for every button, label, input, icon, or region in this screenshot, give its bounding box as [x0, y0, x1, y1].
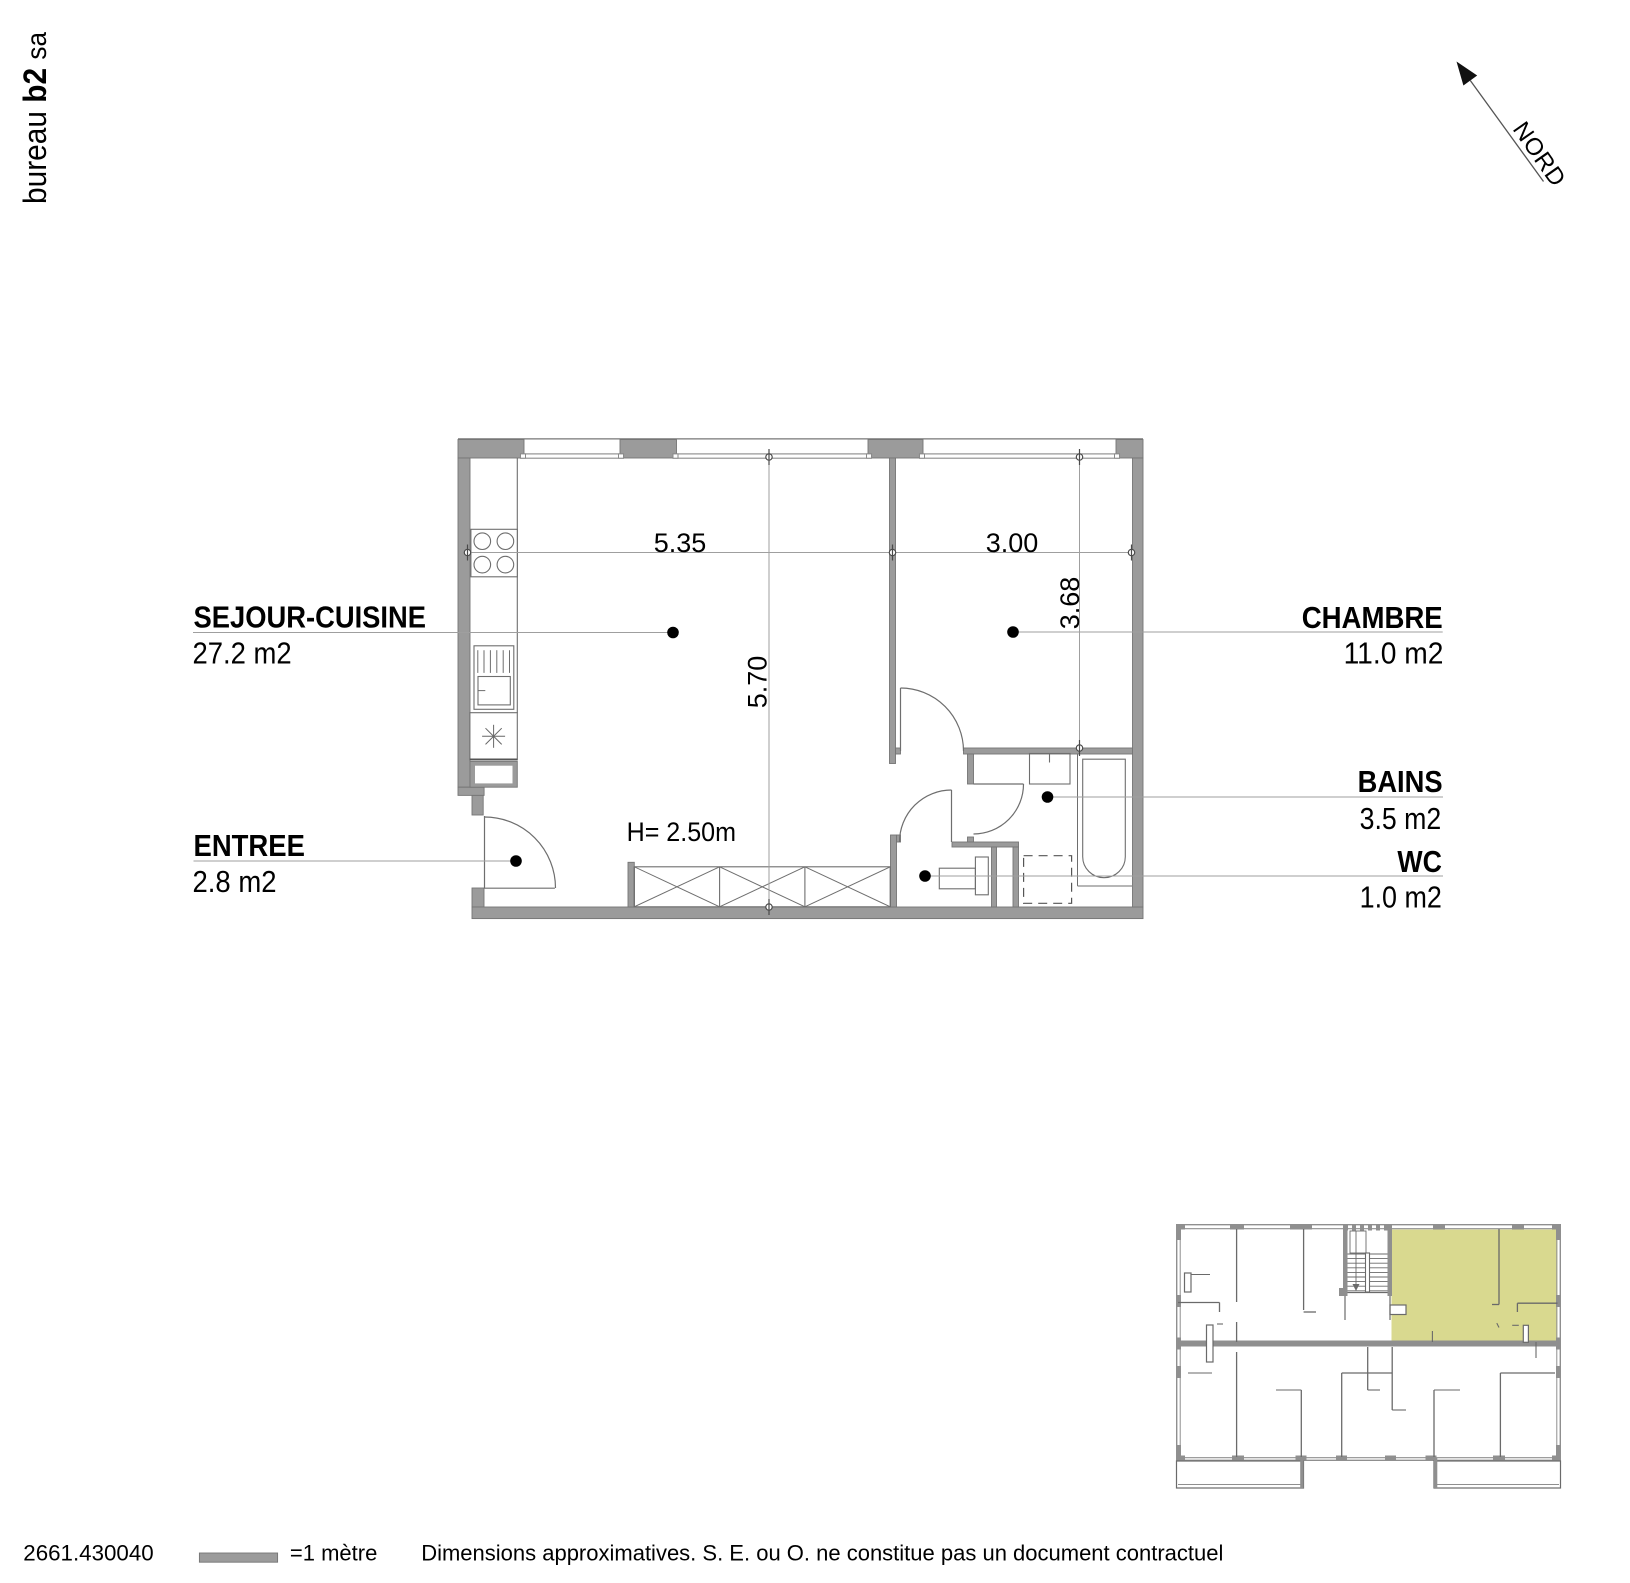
svg-text:=1 mètre: =1 mètre [290, 1541, 377, 1566]
svg-text:BAINS: BAINS [1358, 764, 1443, 799]
svg-text:5.35: 5.35 [654, 528, 707, 558]
svg-text:1.0 m2: 1.0 m2 [1360, 879, 1442, 914]
svg-text:5.70: 5.70 [743, 656, 773, 709]
svg-text:11.0 m2: 11.0 m2 [1344, 636, 1444, 671]
svg-text:Dimensions approximatives. S.: Dimensions approximatives. S. E. ou O. n… [421, 1541, 1223, 1566]
svg-text:3.00: 3.00 [986, 528, 1039, 558]
svg-text:CHAMBRE: CHAMBRE [1302, 600, 1443, 635]
svg-text:NORD: NORD [1507, 117, 1571, 192]
svg-text:2.8 m2: 2.8 m2 [193, 864, 277, 899]
svg-text:H= 2.50m: H= 2.50m [627, 817, 736, 847]
svg-text:ENTREE: ENTREE [194, 828, 305, 863]
svg-text:WC: WC [1397, 844, 1442, 879]
svg-text:3.5 m2: 3.5 m2 [1360, 801, 1442, 836]
svg-text:SEJOUR-CUISINE: SEJOUR-CUISINE [194, 599, 427, 634]
svg-text:27.2 m2: 27.2 m2 [193, 635, 292, 670]
svg-text:bureau b2 sa: bureau b2 sa [17, 32, 53, 204]
svg-text:3.68: 3.68 [1055, 577, 1085, 630]
svg-text:2661.430040: 2661.430040 [23, 1541, 153, 1566]
